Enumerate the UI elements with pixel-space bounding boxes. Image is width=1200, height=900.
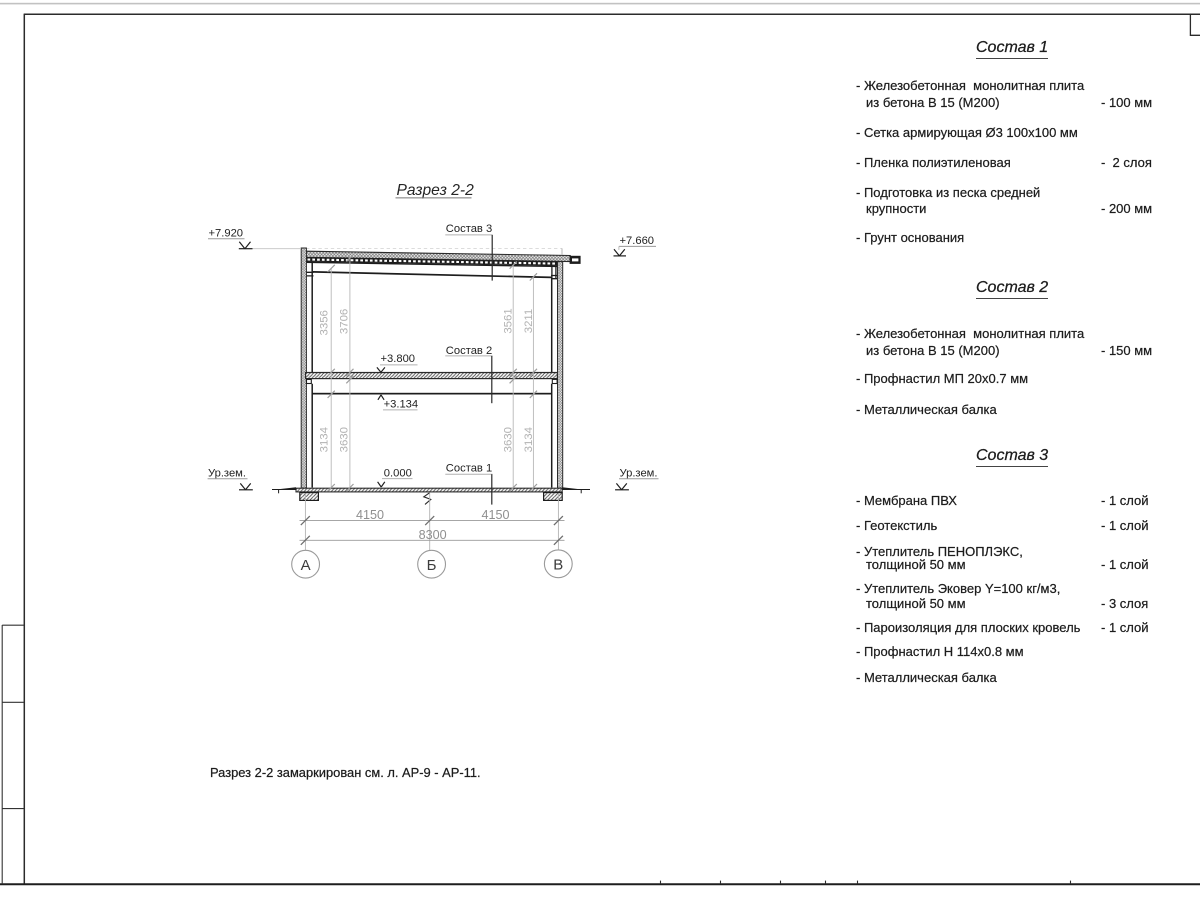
svg-text:3211: 3211: [523, 309, 535, 334]
svg-text:8300: 8300: [419, 528, 447, 542]
svg-text:А: А: [301, 557, 311, 574]
svg-text:Разрез 2-2: Разрез 2-2: [397, 182, 475, 199]
svg-text:+7.920: +7.920: [209, 227, 244, 239]
svg-text:3630: 3630: [339, 427, 351, 452]
svg-text:+7.660: +7.660: [620, 235, 655, 247]
svg-text:Б: Б: [427, 557, 437, 574]
svg-text:3706: 3706: [339, 309, 351, 334]
svg-text:0.000: 0.000: [384, 467, 412, 479]
svg-text:3630: 3630: [503, 427, 515, 452]
svg-text:3356: 3356: [318, 310, 330, 335]
svg-text:Ур.зем.: Ур.зем.: [620, 467, 658, 479]
svg-text:4150: 4150: [481, 508, 509, 522]
svg-text:В: В: [553, 556, 563, 573]
svg-text:Состав 1: Состав 1: [446, 463, 492, 475]
svg-text:+3.800: +3.800: [381, 353, 416, 365]
svg-text:Состав 2: Состав 2: [446, 345, 492, 357]
svg-text:Состав 3: Состав 3: [446, 223, 492, 235]
svg-text:Ур.зем.: Ур.зем.: [208, 467, 246, 479]
svg-text:3134: 3134: [523, 427, 535, 452]
svg-text:3134: 3134: [318, 427, 330, 452]
svg-text:4150: 4150: [356, 508, 384, 522]
svg-text:3561: 3561: [503, 308, 515, 333]
svg-text:+3.134: +3.134: [384, 398, 419, 410]
